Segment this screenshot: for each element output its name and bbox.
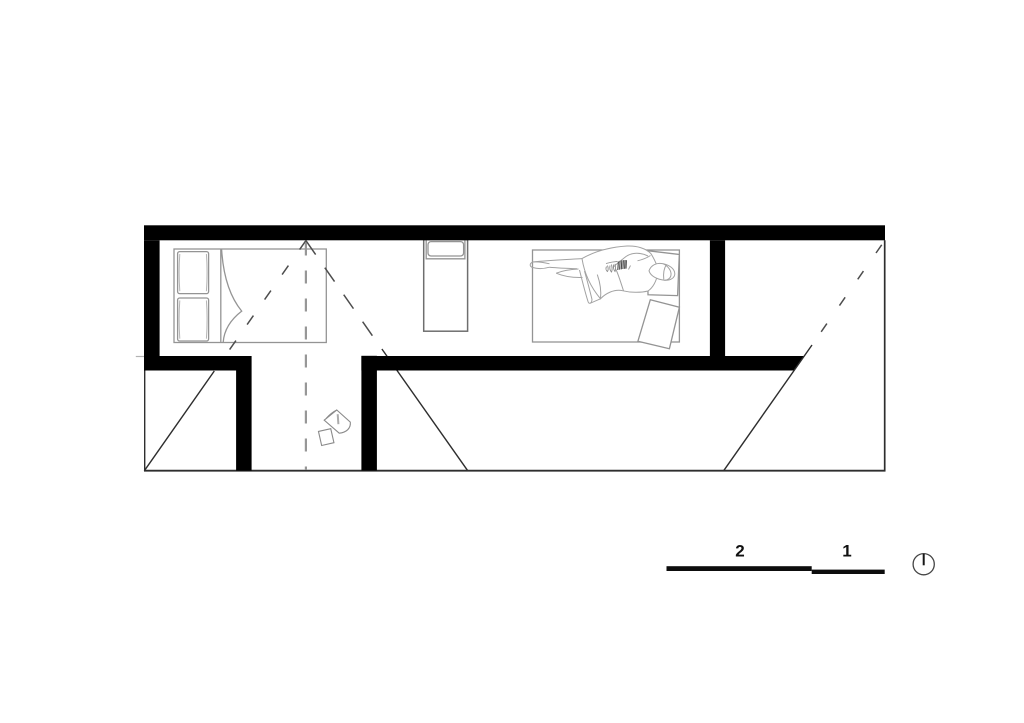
svg-text:2: 2 [735, 542, 744, 561]
svg-text:1: 1 [842, 542, 851, 561]
